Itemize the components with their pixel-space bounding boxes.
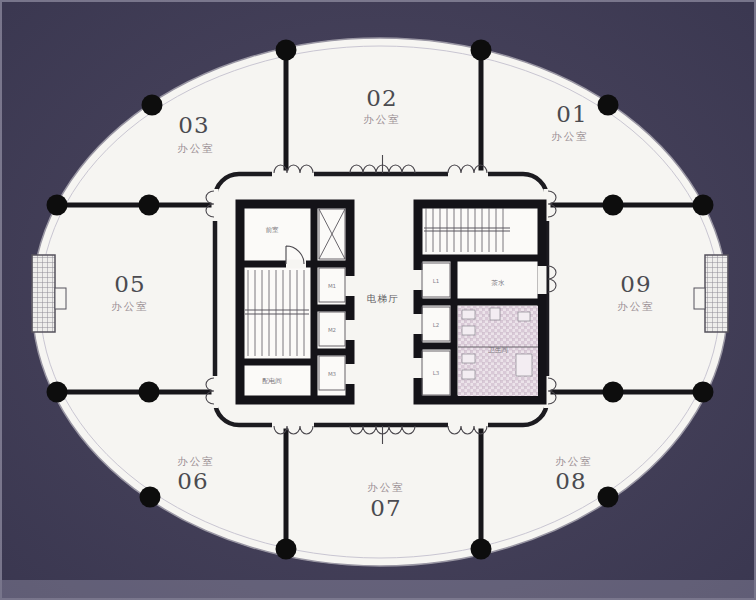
column-dot [693,195,714,216]
lift-m3-label: M3 [328,371,337,377]
column-dot [142,95,163,116]
column-dot [603,195,624,216]
room-09-number: 09 [620,271,651,297]
lift-l2-label: L2 [433,322,440,328]
lift-l3-label: L3 [433,370,440,376]
room-06-number: 06 [177,468,208,494]
room-06-label: 办公室 [177,455,215,467]
column-dot [276,539,297,560]
room-07-label: 办公室 [367,481,405,493]
column-dot [47,195,68,216]
anteroom-label: 前室 [266,226,280,234]
column-dot [139,195,160,216]
column-dot [598,487,619,508]
column-dot [603,382,624,403]
room-03-label: 办公室 [177,142,215,154]
toilet-label: 卫生间 [488,346,508,354]
lift-l1-label: L1 [433,278,440,284]
room-09-label: 办公室 [617,300,655,312]
column-dot [471,40,492,61]
lift-m1-label: M1 [328,283,336,289]
room-01-number: 01 [556,101,587,127]
room-05-label: 办公室 [111,300,149,312]
room-07-number: 07 [370,495,401,521]
floor-plan: 01 办公室 02 办公室 03 办公室 05 办公室 办公室 06 办公室 0… [2,2,756,600]
room-03-number: 03 [178,112,209,138]
column-dot [276,40,297,61]
column-dot [693,382,714,403]
room-01-label: 办公室 [551,130,589,142]
room-08-number: 08 [555,468,586,494]
column-dot [598,95,619,116]
elevator-hall-label: 电梯厅 [367,293,400,304]
pantry-label: 茶水 [491,279,506,287]
column-dot [47,382,68,403]
lift-m2-label: M2 [328,327,336,333]
column-dot [139,382,160,403]
room-05-number: 05 [114,271,145,297]
column-dot [140,487,161,508]
power-room-label: 配电间 [262,377,282,385]
left-core-block [240,204,354,400]
photo-edge-artifact [2,580,756,598]
column-dot [471,539,492,560]
room-02-number: 02 [366,85,397,111]
floor-plan-photo: 01 办公室 02 办公室 03 办公室 05 办公室 办公室 06 办公室 0… [0,0,756,600]
room-08-label: 办公室 [555,455,593,467]
room-02-label: 办公室 [363,113,401,125]
